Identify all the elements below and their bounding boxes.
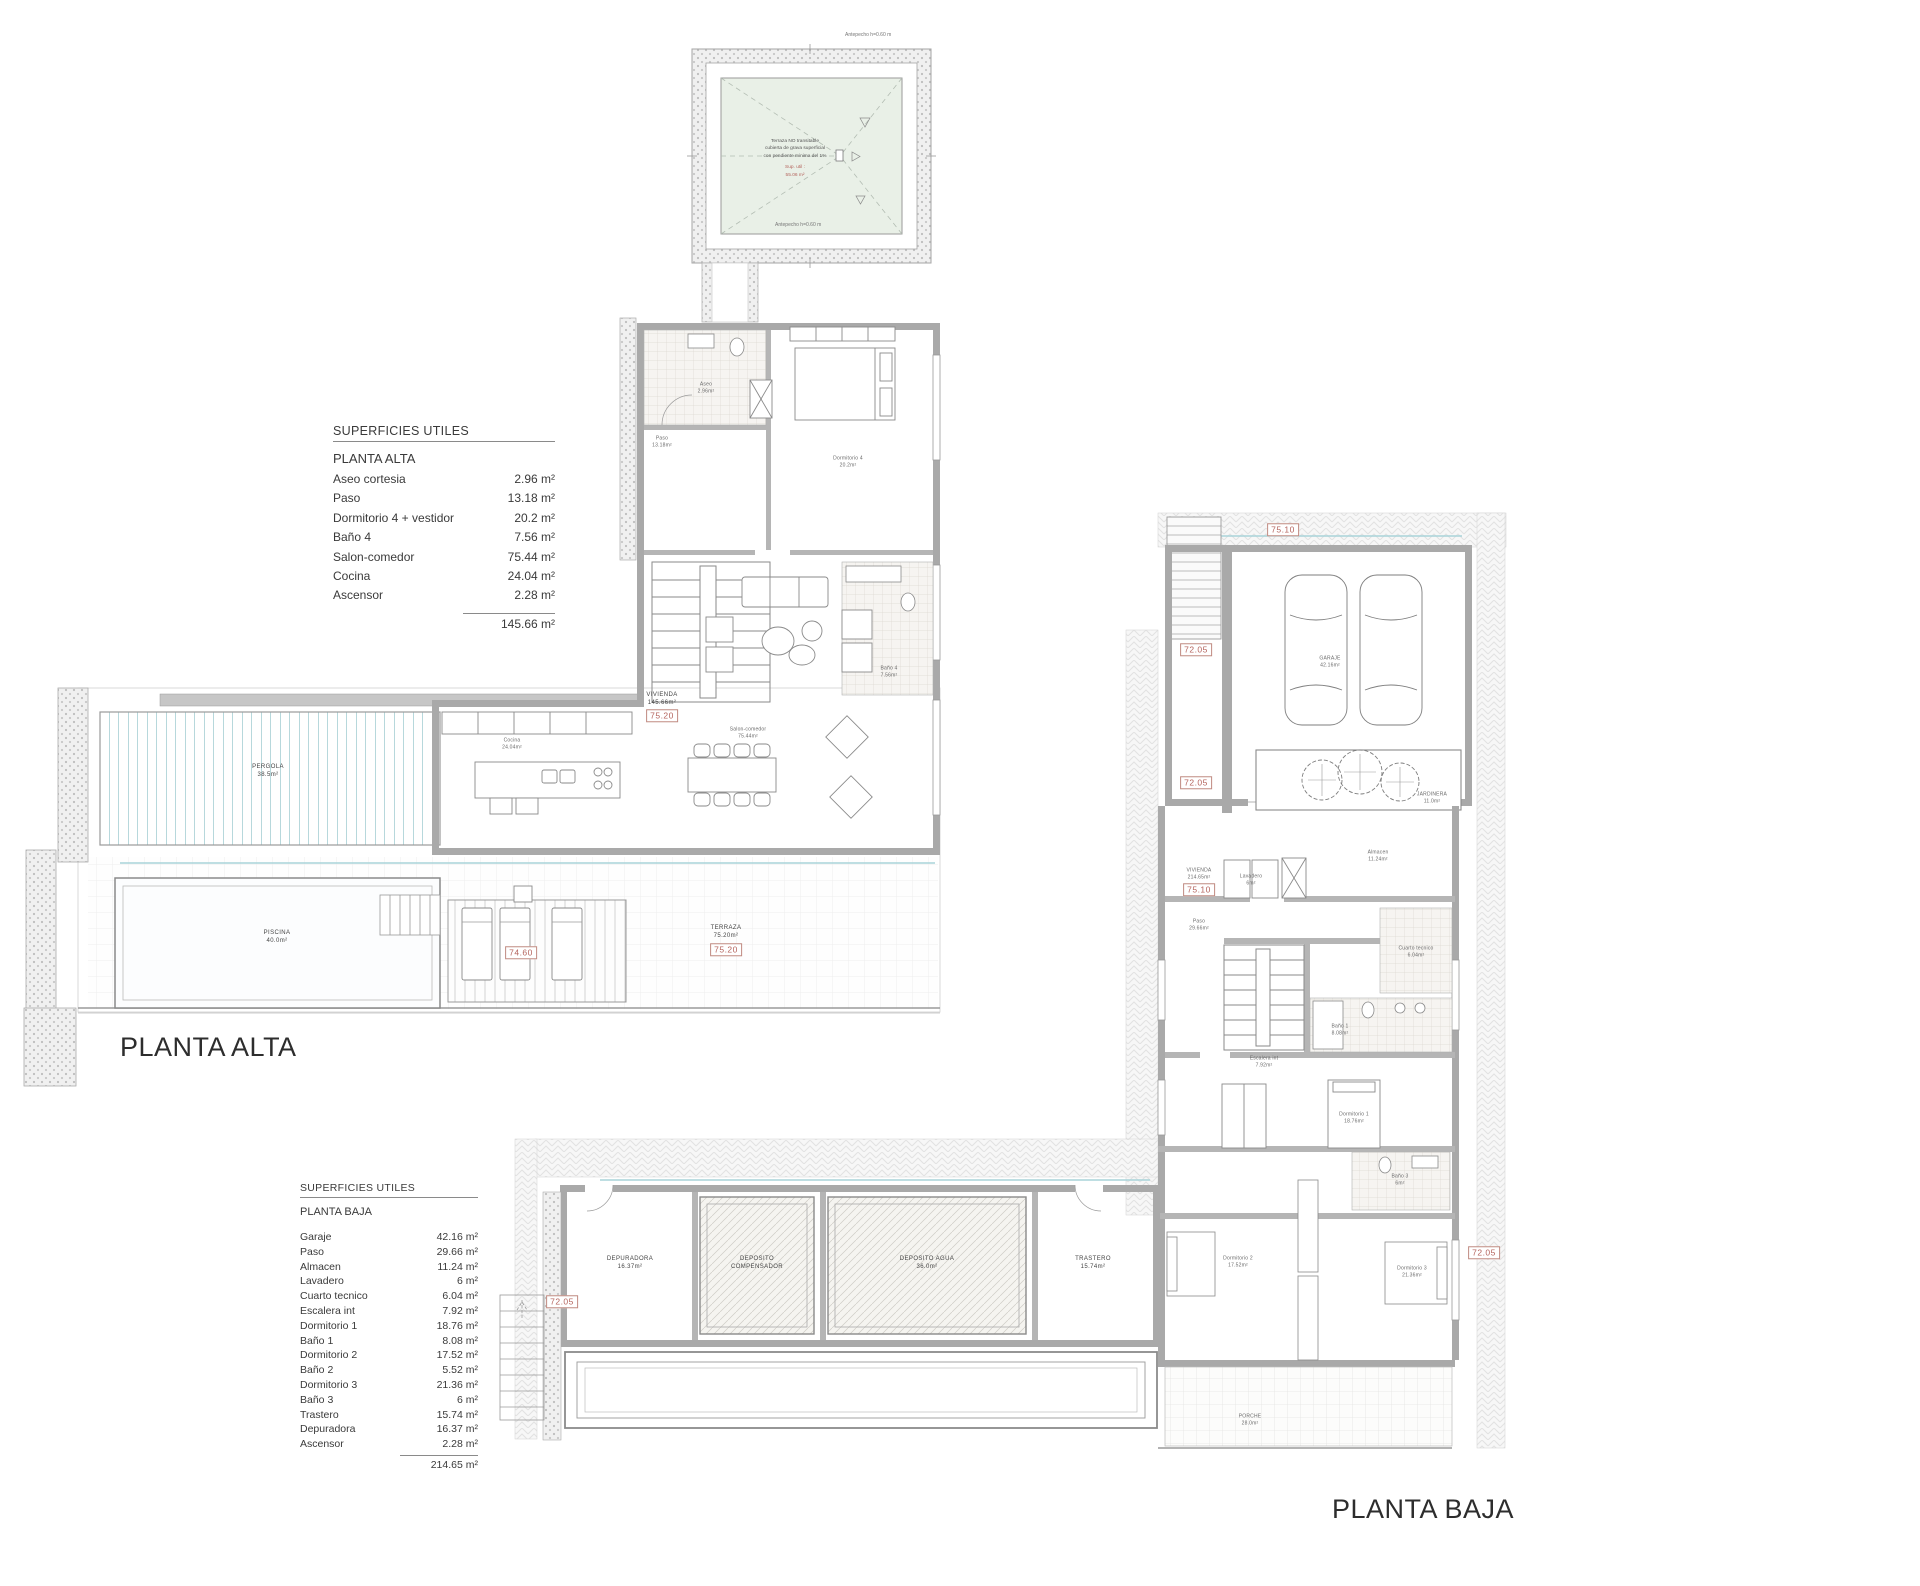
room-label: GARAJE 42.16m² — [1319, 656, 1340, 669]
elevator — [750, 380, 772, 418]
table-row: Dormitorio 118.76 m² — [300, 1319, 478, 1334]
table-rows: Aseo cortesia2.96 m²Paso13.18 m²Dormitor… — [333, 470, 555, 606]
table-row: Salon-comedor75.44 m² — [333, 548, 555, 567]
table-row: Dormitorio 4 + vestidor20.2 m² — [333, 509, 555, 528]
alta-windows — [933, 355, 940, 815]
table-row: Trastero15.74 m² — [300, 1408, 478, 1423]
table-row: Baño 36 m² — [300, 1393, 478, 1408]
baja-stairs — [1224, 945, 1304, 1050]
level-tag: 75.20 — [710, 943, 742, 956]
table-row: Ascensor2.28 m² — [333, 586, 555, 605]
room-label: DEPOSITO COMPENSADOR — [731, 1256, 783, 1272]
room-label: TRASTERO 15.74m² — [1075, 1256, 1111, 1272]
room-label: Salon-comedor 75.44m² — [730, 727, 767, 740]
table-row: Almacen11.24 m² — [300, 1260, 478, 1275]
room-label: Dormitorio 2 17.52m² — [1223, 1256, 1253, 1269]
level-tag: 72.05 — [1180, 776, 1212, 789]
cars — [1285, 575, 1422, 725]
room-label: VIVIENDA 214.65m² — [1187, 868, 1212, 881]
table-subtitle: PLANTA BAJA — [300, 1206, 478, 1218]
level-tag: 75.20 — [646, 709, 678, 722]
roof-note: Terraza NO transitablecubierta de grava … — [730, 138, 860, 179]
room-label: VIVIENDA 145.66m² — [646, 692, 677, 708]
room-label: Cocina 24.04m² — [502, 738, 522, 751]
terrace-steps — [380, 895, 440, 935]
table-row: Garaje42.16 m² — [300, 1230, 478, 1245]
room-label: JARDINERA 11.0m² — [1417, 792, 1447, 805]
room-label: DEPOSITO AGUA 36.0m² — [900, 1256, 954, 1272]
level-tag: 72.05 — [1180, 643, 1212, 656]
room-label: PISCINA 40.0m² — [264, 930, 291, 946]
room-label: Dormitorio 1 18.76m² — [1339, 1112, 1369, 1125]
basement-wing — [500, 1180, 1160, 1440]
table-subtitle: PLANTA ALTA — [333, 451, 555, 466]
table-title: SUPERFICIES UTILES — [333, 424, 555, 442]
area-table-planta-baja: SUPERFICIES UTILES PLANTA BAJA Garaje42.… — [300, 1182, 478, 1471]
table-row: Dormitorio 217.52 m² — [300, 1348, 478, 1363]
table-title: SUPERFICIES UTILES — [300, 1182, 478, 1198]
table-rows: Garaje42.16 m²Paso29.66 m²Almacen11.24 m… — [300, 1230, 478, 1452]
table-total: 214.65 m² — [400, 1455, 478, 1471]
room-label: Paso 13.18m² — [652, 436, 672, 449]
porche — [1165, 1367, 1452, 1446]
table-row: Depuradora16.37 m² — [300, 1422, 478, 1437]
pool-basin — [565, 1352, 1157, 1428]
driveway-ramp — [1167, 517, 1221, 639]
bed-dorm4 — [790, 327, 895, 420]
table-row: Paso13.18 m² — [333, 489, 555, 508]
table-row: Baño 47.56 m² — [333, 528, 555, 547]
table-row: Baño 18.08 m² — [300, 1334, 478, 1349]
table-row: Escalera int7.92 m² — [300, 1304, 478, 1319]
sun-deck — [448, 886, 626, 1002]
room-label: Aseo 2.96m² — [698, 382, 715, 395]
table-row: Baño 25.52 m² — [300, 1363, 478, 1378]
kitchen — [442, 712, 632, 814]
roof-edge-note-top: Antepecho h=0.60 m — [845, 32, 891, 38]
room-label: Paso 29.66m² — [1189, 919, 1209, 932]
table-row: Cocina24.04 m² — [333, 567, 555, 586]
floor-plan-sheet: Terraza NO transitablecubierta de grava … — [0, 0, 1920, 1586]
roof-plan-group — [687, 44, 936, 322]
level-tag: 75.10 — [1183, 883, 1215, 896]
roof-note-red: Sup. util :55.06 m² — [730, 164, 860, 179]
room-label: Almacen 11.24m² — [1368, 850, 1389, 863]
roof-edge-note-bottom: Antepecho h=0.60 m — [775, 222, 821, 228]
room-label: Baño 3 6m² — [1391, 1174, 1408, 1187]
level-tag: 75.10 — [1267, 523, 1299, 536]
room-label: DEPURADORA 16.37m² — [607, 1256, 653, 1272]
table-row: Paso29.66 m² — [300, 1245, 478, 1260]
table-row: Cuarto tecnico6.04 m² — [300, 1289, 478, 1304]
room-label: Escalera int 7.92m² — [1250, 1056, 1279, 1069]
level-tag: 72.05 — [1468, 1246, 1500, 1259]
table-row: Dormitorio 321.36 m² — [300, 1378, 478, 1393]
level-tag: 72.05 — [546, 1295, 578, 1308]
table-row: Ascensor2.28 m² — [300, 1437, 478, 1452]
planta-alta-title: PLANTA ALTA — [120, 1032, 297, 1063]
room-label: PERGOLA 38.5m² — [252, 764, 284, 780]
dining-set — [688, 744, 776, 806]
room-label: Baño 1 8.08m² — [1331, 1024, 1348, 1037]
room-label: Dormitorio 4 20.2m² — [833, 456, 863, 469]
roof-note-black: Terraza NO transitablecubierta de grava … — [730, 138, 860, 160]
floor-plan-drawing — [0, 0, 1920, 1586]
planta-baja-title: PLANTA BAJA — [1332, 1494, 1514, 1525]
room-label: PORCHE 28.0m² — [1239, 1414, 1262, 1427]
room-label: TERRAZA 75.20m² — [711, 925, 742, 941]
baja-elevator — [1224, 858, 1306, 898]
room-label: Baño 4 7.56m² — [880, 666, 897, 679]
table-total: 145.66 m² — [463, 613, 555, 631]
level-tag: 74.60 — [505, 946, 537, 959]
room-label: Cuarto tecnico 6.04m² — [1398, 946, 1433, 959]
table-row: Lavadero6 m² — [300, 1274, 478, 1289]
area-table-planta-alta: SUPERFICIES UTILES PLANTA ALTA Aseo cort… — [333, 424, 555, 631]
room-label: Dormitorio 3 21.36m² — [1397, 1266, 1427, 1279]
room-label: Lavadero 6m² — [1240, 874, 1262, 887]
table-row: Aseo cortesia2.96 m² — [333, 470, 555, 489]
